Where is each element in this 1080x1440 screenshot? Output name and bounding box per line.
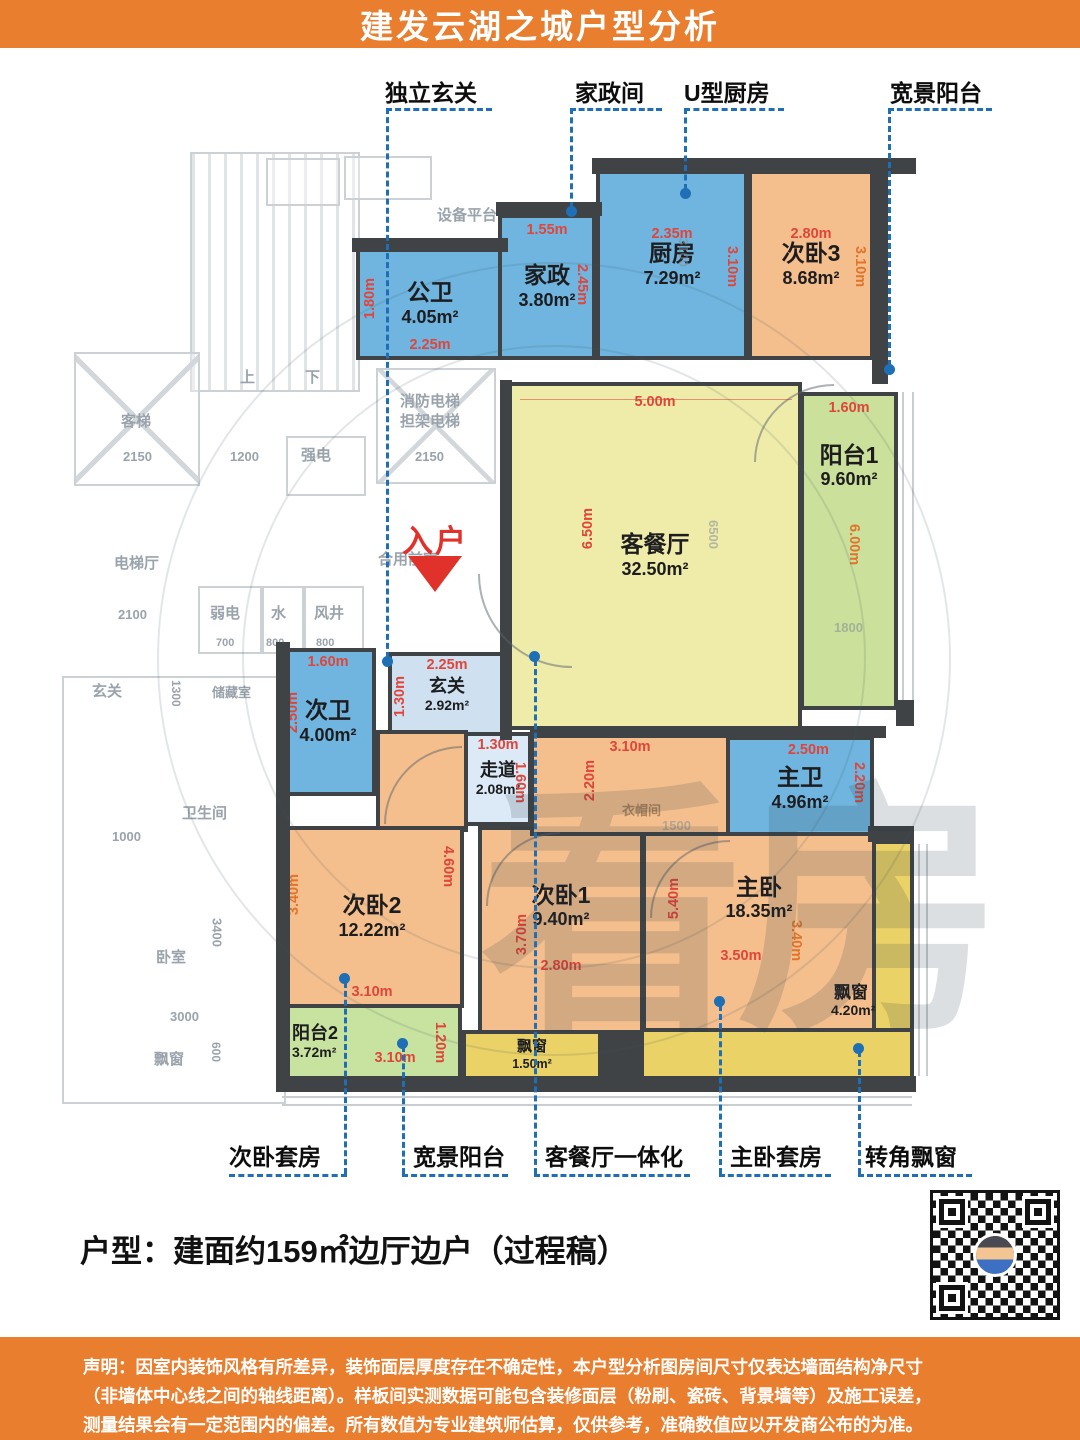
callout-line	[570, 108, 573, 208]
callout-line	[858, 1174, 972, 1177]
callout-line	[386, 108, 492, 111]
callout-line	[719, 1174, 831, 1177]
callout-line	[858, 1051, 861, 1174]
dim-label: 3.10m	[724, 246, 740, 287]
qr-code[interactable]	[930, 1190, 1060, 1320]
nb-bedroom-label: 卧室	[156, 948, 186, 968]
disclaimer-bar: 声明：因室内装饰风格有所差异，装饰面层厚度存在不确定性，本户型分析图房间尺寸仅表…	[0, 1337, 1080, 1440]
callout-line	[344, 982, 347, 1174]
callout-dot	[566, 206, 577, 217]
nb-dim-600: 600	[208, 1042, 224, 1062]
callout-kitchen: U型厨房	[684, 74, 770, 108]
watermark-text: 看房	[480, 700, 994, 1083]
callout-dot	[884, 364, 895, 375]
qr-finder-icon	[939, 1285, 965, 1311]
disclaimer-line: 声明：因室内装饰风格有所差异，装饰面层厚度存在不确定性，本户型分析图房间尺寸仅表…	[83, 1353, 1080, 1382]
avatar	[976, 1236, 1014, 1274]
callout-line	[888, 108, 992, 111]
callout-master-suite: 主卧套房	[730, 1138, 822, 1172]
callout-line	[402, 1174, 508, 1177]
callout-dot	[853, 1043, 864, 1054]
callout-balcony-bottom: 宽景阳台	[413, 1138, 505, 1172]
elevator-hall-label: 电梯厅	[114, 554, 159, 574]
callout-line	[386, 108, 389, 658]
wall	[352, 238, 508, 252]
callout-dot	[397, 1038, 408, 1049]
callout-line	[719, 1005, 722, 1174]
entry-arrow-icon	[408, 556, 462, 592]
callout-bedroom-suite: 次卧套房	[229, 1138, 321, 1172]
dim-label: 1.55m	[526, 222, 567, 238]
dim-2150: 2150	[123, 448, 152, 466]
unit-summary: 户型：建面约159㎡边厅边户（过程稿）	[80, 1226, 628, 1271]
callout-dot	[714, 996, 725, 1007]
nb-foyer-label: 玄关	[92, 682, 122, 702]
nb-dim-3400: 3400	[208, 918, 226, 947]
room-name: 次卧3	[782, 240, 841, 266]
callout-line	[684, 108, 687, 190]
callout-dot	[680, 188, 691, 199]
bg-dim: 3100	[676, 238, 691, 267]
dim-label: 3.10m	[374, 1050, 415, 1066]
wall	[872, 162, 888, 384]
room-area: 8.68m²	[782, 267, 839, 290]
callout-living-integrated: 客餐厅一体化	[545, 1138, 683, 1172]
callout-line	[888, 108, 891, 366]
qr-finder-icon	[1025, 1199, 1051, 1225]
wall	[496, 202, 602, 216]
equipment-platform-label: 设备平台	[437, 206, 497, 226]
callout-laundry: 家政间	[575, 74, 644, 108]
dim-label: 2.80m	[790, 226, 831, 242]
nb-dim-1000: 1000	[112, 828, 141, 846]
callout-dot	[339, 973, 350, 984]
callout-dot	[529, 651, 540, 662]
callout-dot	[382, 656, 393, 667]
room-area: 3.72m²	[292, 1043, 336, 1061]
room-name: 阳台2	[292, 1023, 338, 1044]
callout-line	[534, 660, 537, 1174]
callout-line	[570, 108, 662, 111]
disclaimer-line: 测量结果会有一定范围内的偏差。所有数值为专业建筑师估算，仅供参考，准确数值应以开…	[83, 1411, 1080, 1440]
callout-line	[534, 1174, 690, 1177]
callout-line	[402, 1046, 405, 1174]
callout-balcony-top: 宽景阳台	[890, 74, 982, 108]
callout-line	[229, 1174, 347, 1177]
dim-2100: 2100	[118, 606, 147, 624]
entry-label: 入户	[402, 516, 468, 561]
poster-page: 建发云湖之城户型分析 上 下 设备平台 客梯 2150 1200 强电 消防电梯…	[0, 0, 1080, 1440]
equipment-box	[266, 158, 340, 206]
stair-up-label: 上	[240, 368, 255, 388]
title-bar: 建发云湖之城户型分析	[0, 0, 1080, 48]
window	[282, 1096, 912, 1106]
passenger-elevator-label: 客梯	[121, 412, 151, 432]
dim-label: 3.10m	[852, 246, 868, 287]
disclaimer-line: （非墙体中心线之间的轴线距离）。样板间实测数据可能包含装修面层（粉刷、瓷砖、背景…	[83, 1382, 1080, 1411]
nb-baywindow-label: 飘窗	[154, 1050, 184, 1070]
callout-line	[684, 108, 784, 111]
callout-foyer: 独立玄关	[385, 74, 477, 108]
page-title: 建发云湖之城户型分析	[360, 0, 720, 48]
nb-dim-3000: 3000	[170, 1008, 199, 1026]
qr-finder-icon	[939, 1199, 965, 1225]
wall	[592, 158, 916, 174]
callout-corner-bay: 转角飘窗	[865, 1138, 957, 1172]
